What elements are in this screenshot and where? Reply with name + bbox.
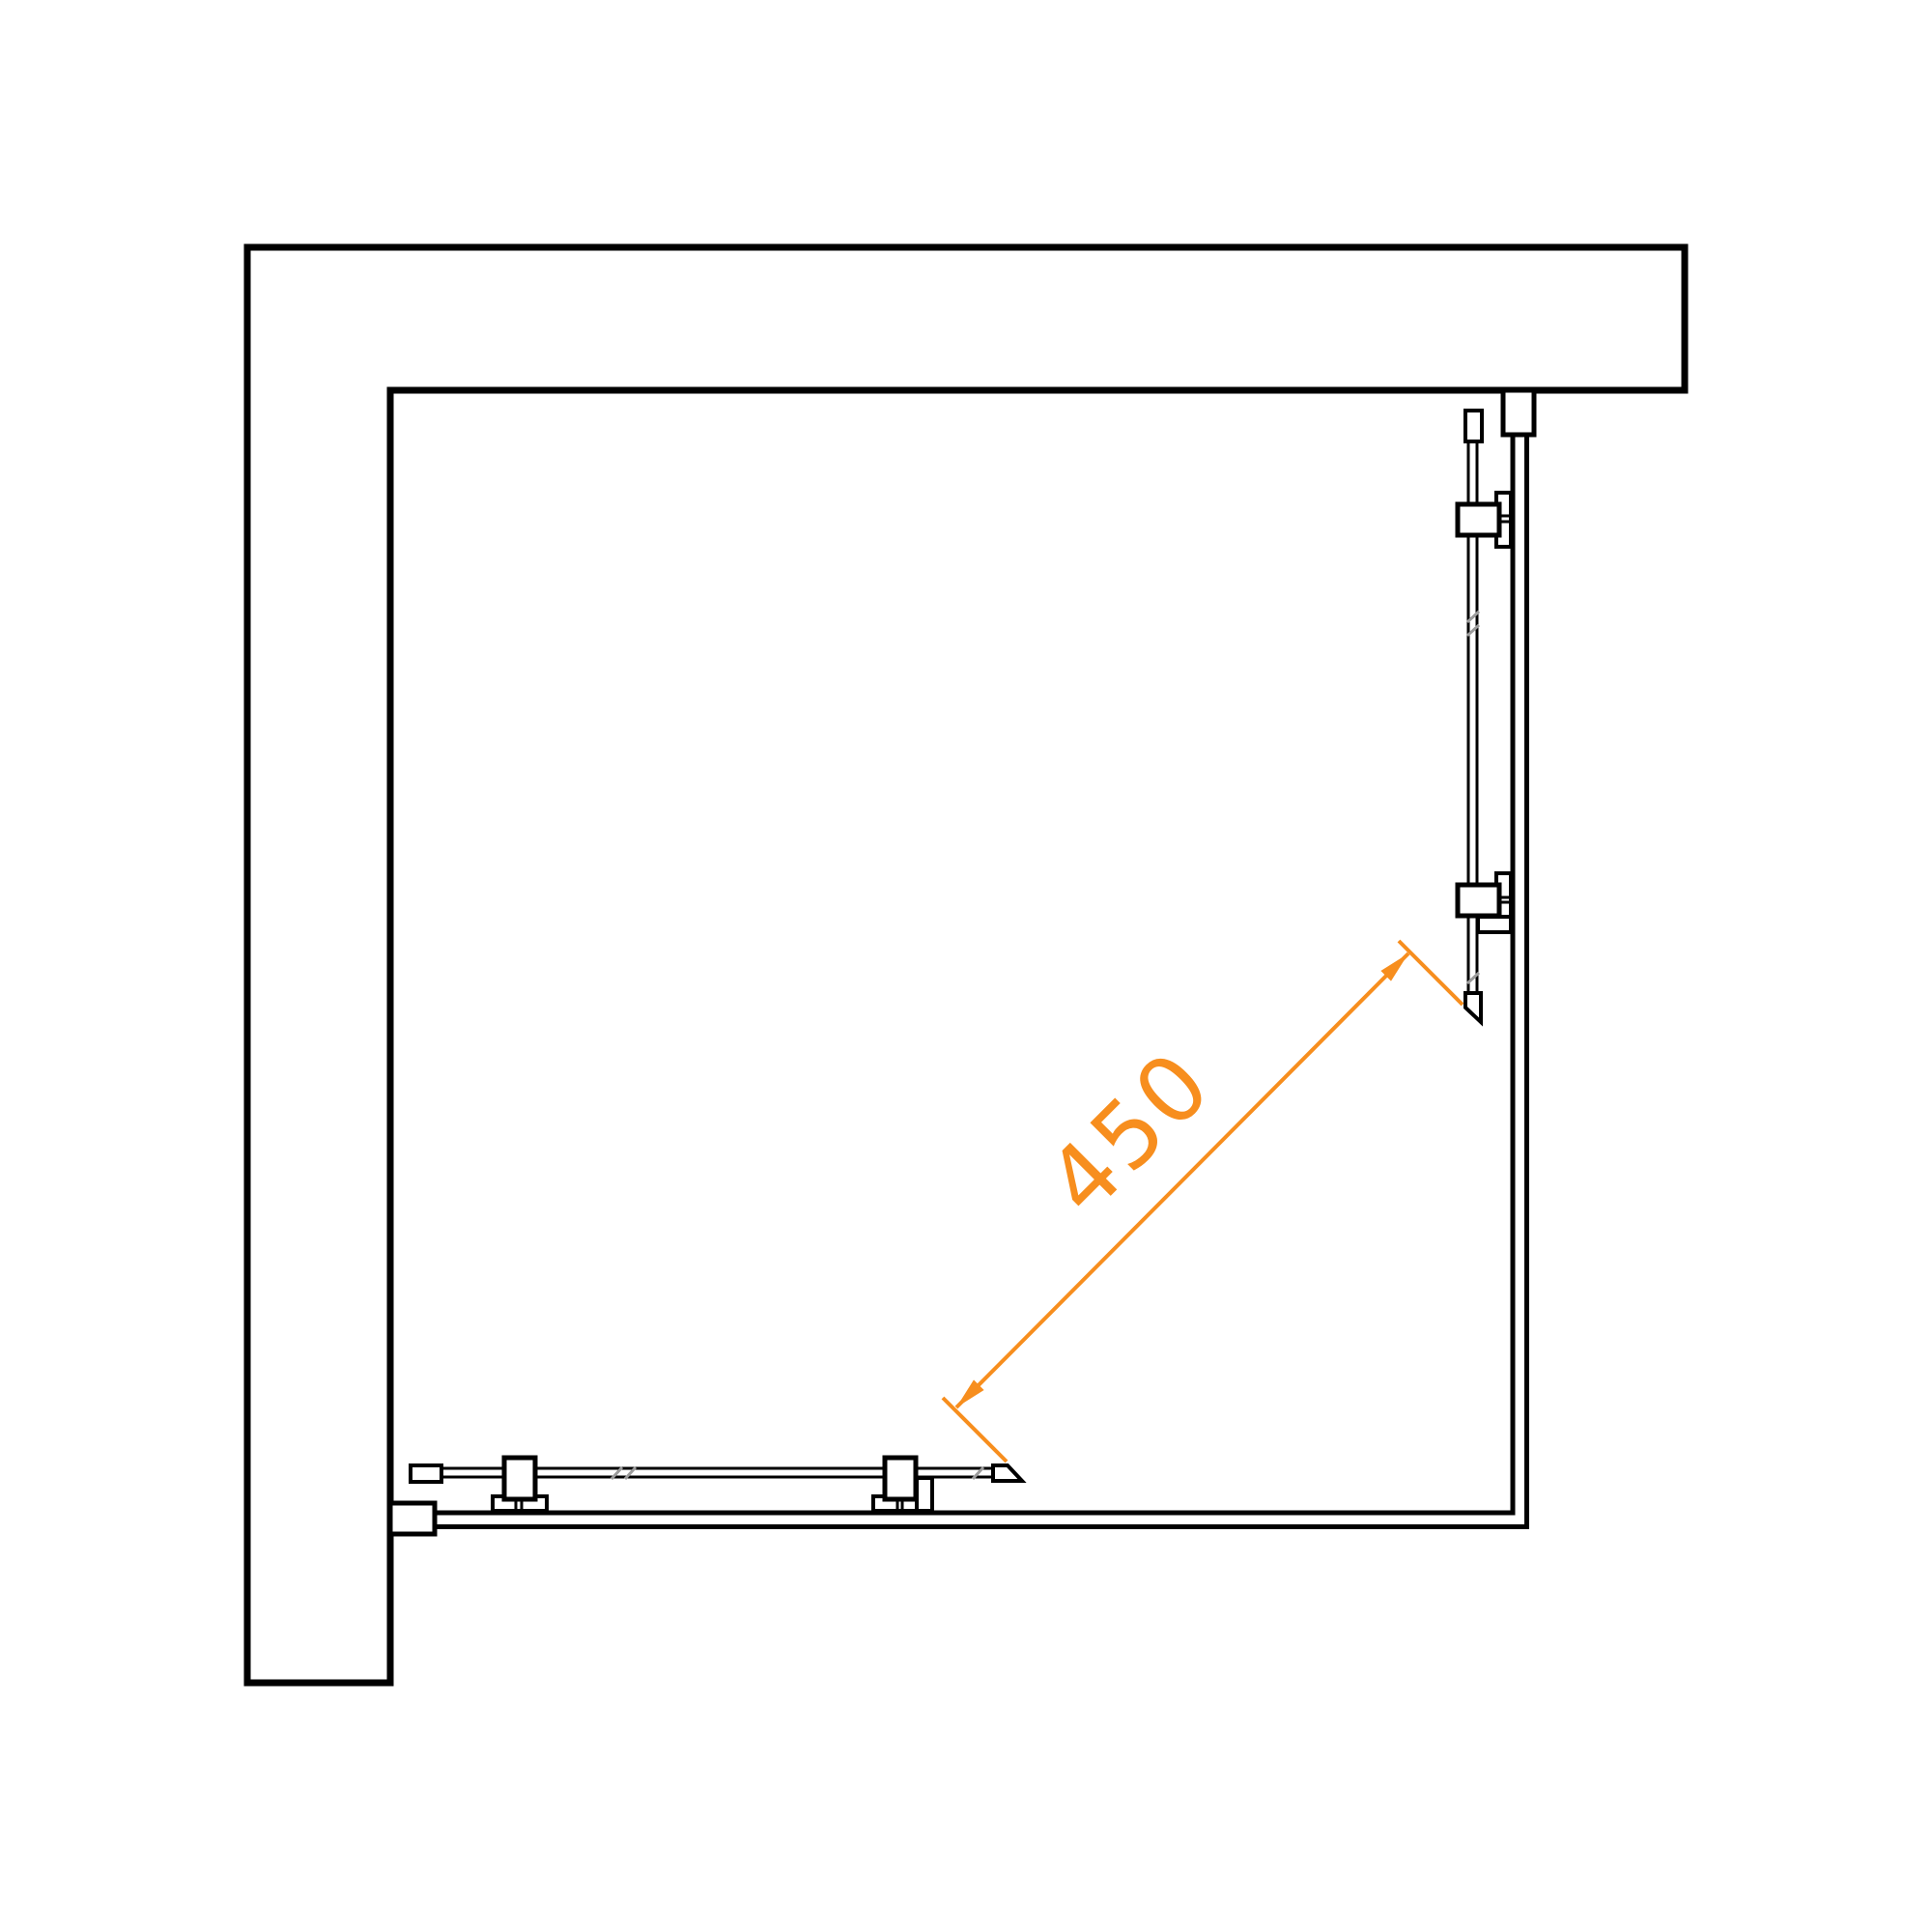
- door-end-cap: [411, 1465, 441, 1482]
- door-handle-knob: [1465, 993, 1481, 1022]
- wall-profile-bracket-bottom: [390, 1503, 435, 1534]
- dimension-line: [956, 953, 1408, 1407]
- wall-profile-bracket-right: [1503, 390, 1534, 435]
- clamp-body: [1458, 504, 1499, 535]
- clamp-body: [504, 1458, 535, 1499]
- clamp-step-bracket: [1478, 917, 1511, 932]
- fixed-panel-inner-line: [435, 435, 1513, 1513]
- sliding-door-bottom: [411, 1458, 1022, 1511]
- clamp-body: [1458, 885, 1499, 916]
- sliding-door-right: [1458, 411, 1511, 1022]
- door-clamp-lower: [1458, 873, 1511, 932]
- dimension-extension-line: [943, 1398, 1007, 1462]
- door-clamp-upper: [1458, 493, 1511, 547]
- technical-drawing-canvas: 450: [0, 0, 1932, 1932]
- door-handle-knob: [993, 1465, 1022, 1481]
- door-clamp-left: [493, 1458, 547, 1511]
- fixed-panel-outer-line: [435, 435, 1527, 1527]
- dimension-450: 450: [943, 941, 1463, 1462]
- fixed-panel-glass: [435, 435, 1527, 1527]
- clamp-body: [885, 1458, 916, 1499]
- dimension-label: 450: [1028, 1031, 1233, 1236]
- door-clamp-right: [873, 1458, 932, 1511]
- clamp-step-bracket: [917, 1478, 932, 1511]
- dimension-extension-line: [1399, 941, 1463, 1005]
- door-end-cap: [1465, 411, 1482, 441]
- shower-enclosure-plan-drawing: 450: [0, 0, 1932, 1932]
